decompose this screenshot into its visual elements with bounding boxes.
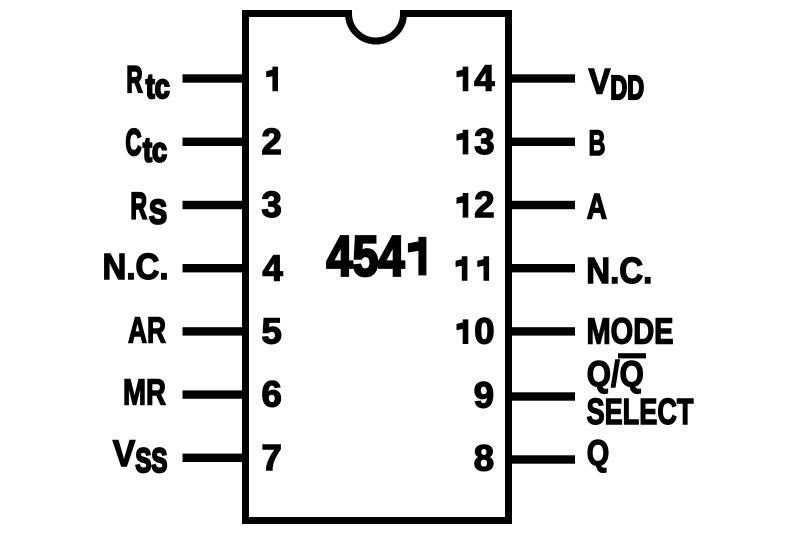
svg-text:DD: DD [610,69,644,106]
svg-text:MODE: MODE [587,311,674,352]
svg-text:tc: tc [143,132,167,170]
svg-text:R: R [131,186,148,227]
svg-text:0: 0 [474,310,494,351]
svg-text:6: 6 [262,374,282,415]
svg-text:S: S [149,194,167,232]
svg-text:A: A [587,187,607,226]
svg-text:7: 7 [262,437,282,478]
svg-text:Q: Q [587,433,610,474]
svg-text:2: 2 [262,121,282,162]
svg-text:2: 2 [474,184,494,225]
svg-text:N.C.: N.C. [103,246,169,287]
svg-text:tc: tc [146,68,170,106]
svg-text:454: 454 [327,224,405,287]
svg-text:4: 4 [263,248,284,289]
svg-text:Q/Q: Q/Q [587,354,644,395]
svg-text:5: 5 [262,310,282,351]
svg-text:AR: AR [128,310,166,351]
svg-text:B: B [589,124,606,163]
svg-text:SS: SS [135,442,167,480]
svg-text:3: 3 [474,121,494,162]
svg-text:C: C [126,122,142,163]
svg-text:4: 4 [474,58,495,99]
svg-text:V: V [113,433,136,474]
svg-text:9: 9 [474,375,494,416]
svg-text:N.C.: N.C. [586,250,652,291]
svg-text:8: 8 [474,438,494,479]
svg-text:MR: MR [123,372,166,413]
svg-text:V: V [589,63,612,102]
svg-text:SELECT: SELECT [587,391,694,432]
svg-text:3: 3 [262,184,282,225]
svg-text:R: R [127,59,143,100]
